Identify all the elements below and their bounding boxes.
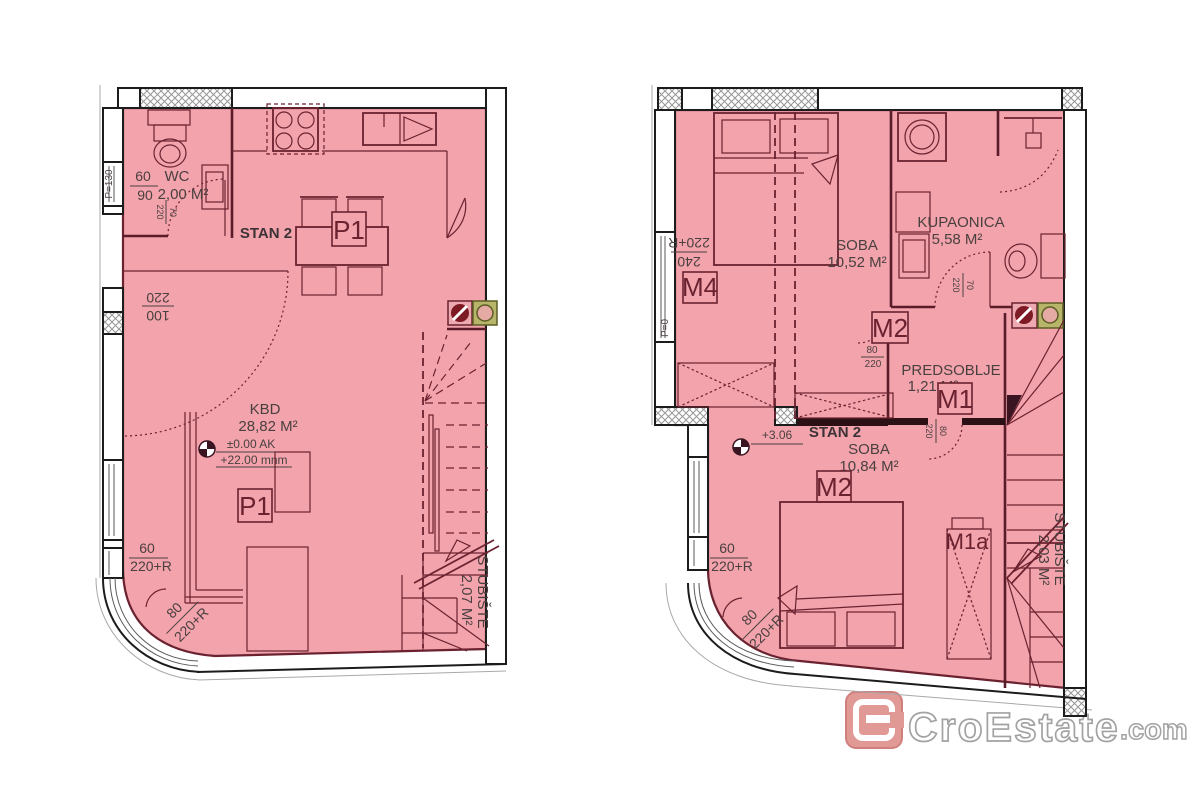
stairs-name-right: STUBIŠTE bbox=[1051, 512, 1068, 585]
unit-label-left: STAN 2 bbox=[240, 225, 292, 242]
svg-text:220: 220 bbox=[924, 423, 934, 438]
floor-plan-left: 100 220 P=130 60 90 WC 2,0 bbox=[96, 85, 506, 680]
svg-text:220: 220 bbox=[865, 359, 882, 370]
svg-text:60: 60 bbox=[719, 540, 735, 556]
window-right-lower bbox=[688, 457, 708, 537]
vent-shafts-right bbox=[1012, 303, 1063, 328]
kbd-room-area: 28,82 M² bbox=[238, 418, 297, 435]
door-label-m1a: M1a bbox=[946, 529, 990, 554]
wc-dim-width: 60 bbox=[135, 168, 151, 184]
floor-plan-right: P=0 bbox=[652, 85, 1092, 716]
door-60-left bbox=[103, 548, 123, 578]
logo-brand-text: CroEstate bbox=[908, 704, 1120, 750]
level-relative: ±0.00 AK bbox=[227, 437, 276, 451]
soba-lower-name: SOBA bbox=[848, 441, 890, 458]
svg-text:220+R: 220+R bbox=[668, 235, 710, 251]
door-label-m4: M4 bbox=[682, 272, 718, 302]
level-absolute: +22.00 mnm bbox=[220, 453, 287, 467]
svg-text:220: 220 bbox=[146, 290, 170, 306]
kupaonica-area: 5,58 M² bbox=[932, 231, 983, 248]
soba-upper-area: 10,52 M² bbox=[827, 254, 886, 271]
door-label-m2-upper: M2 bbox=[872, 313, 908, 343]
vent-shafts-left bbox=[447, 301, 497, 329]
sofa-label: P1 bbox=[239, 491, 271, 521]
level-value-right: +3.06 bbox=[762, 428, 793, 442]
svg-text:220: 220 bbox=[155, 204, 165, 219]
floor-plan-drawing: CroEstate .com bbox=[0, 0, 1200, 800]
svg-text:60: 60 bbox=[139, 540, 155, 556]
unit-label-right: STAN 2 bbox=[809, 424, 861, 441]
stairs-area-right: 2,03 M² bbox=[1035, 535, 1052, 586]
watermark-logo: CroEstate .com bbox=[846, 692, 1188, 750]
wc-room-area: 2,00 M² bbox=[158, 186, 209, 203]
svg-text:240: 240 bbox=[677, 254, 701, 270]
predsoblje-name: PREDSOBLJE bbox=[901, 362, 1000, 379]
logo-tld-text: .com bbox=[1120, 714, 1188, 746]
door-label-m1: M1 bbox=[937, 384, 973, 414]
svg-text:80: 80 bbox=[938, 426, 948, 436]
wc-room-name: WC bbox=[165, 168, 190, 185]
parapet-label-left: P=130 bbox=[104, 169, 115, 199]
floor-plan-page: CroEstate .com bbox=[0, 0, 1200, 800]
svg-text:70: 70 bbox=[965, 280, 975, 290]
stairs-name-left: STUBIŠTE bbox=[474, 555, 491, 628]
table-label: P1 bbox=[333, 215, 365, 245]
kupaonica-name: KUPAONICA bbox=[917, 214, 1004, 231]
window-left-lower bbox=[103, 460, 123, 540]
svg-text:80: 80 bbox=[866, 345, 878, 356]
svg-text:70: 70 bbox=[168, 207, 178, 217]
stairs-area-left: 2,07 M² bbox=[458, 575, 475, 626]
door-60-right-wall bbox=[688, 537, 708, 570]
svg-text:220: 220 bbox=[951, 277, 961, 292]
svg-text:220+R: 220+R bbox=[130, 558, 172, 574]
svg-text:220+R: 220+R bbox=[711, 558, 753, 574]
door-label-m2-lower: M2 bbox=[816, 472, 852, 502]
soba-upper-name: SOBA bbox=[836, 237, 878, 254]
svg-text:100: 100 bbox=[146, 308, 170, 324]
wc-dim-depth: 90 bbox=[137, 187, 153, 203]
kbd-room-name: KBD bbox=[250, 401, 281, 418]
parapet-label-right: P=0 bbox=[660, 319, 671, 338]
